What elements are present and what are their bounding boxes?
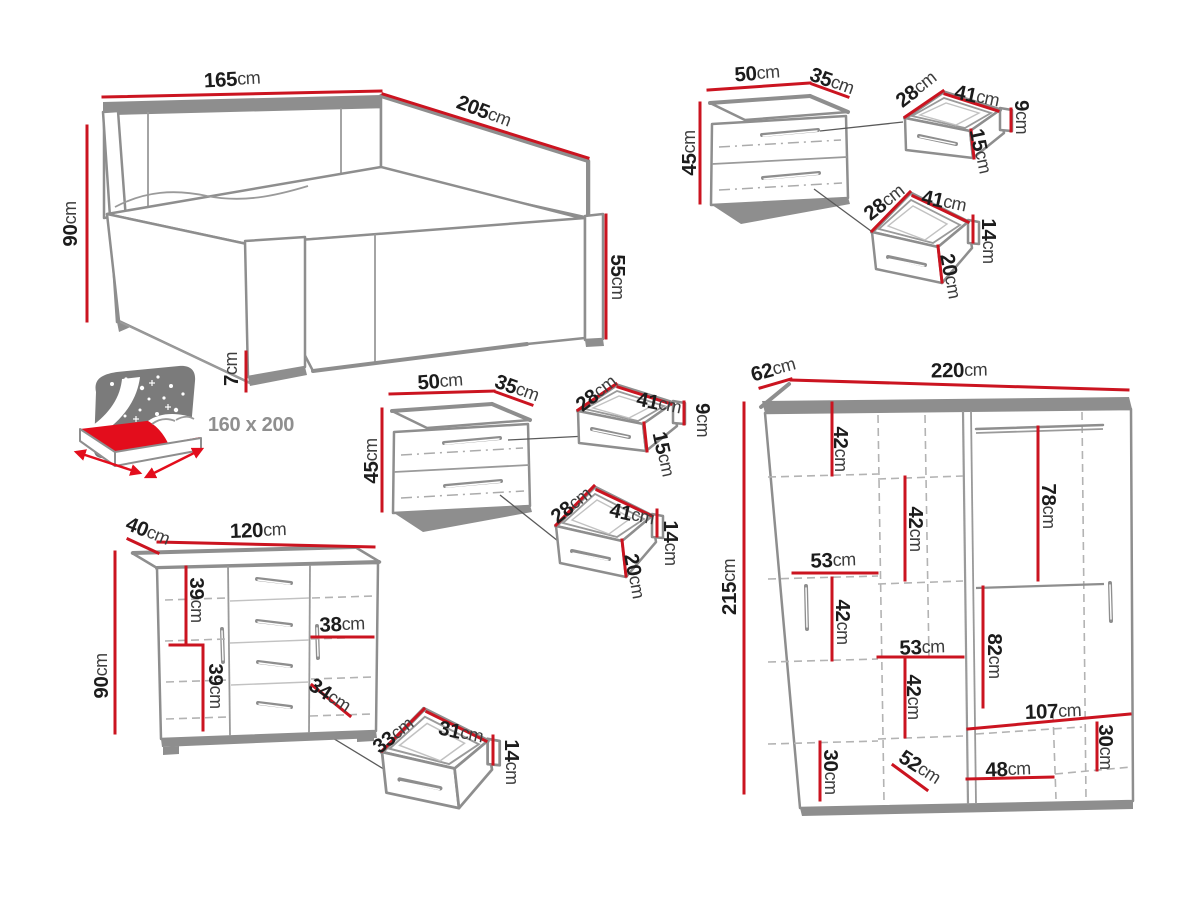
dim-label-wardrobe-inner-width-left: 53cm (810, 548, 856, 573)
dim-label-ns1-depth: 35cm (807, 62, 857, 99)
dim-label-wardrobe-shelf-c: 42cm (832, 599, 855, 644)
nightstand-middle-drawing (392, 404, 532, 532)
dim-label-d3-front-height: 15cm (648, 430, 680, 479)
dresser-drawing (132, 547, 380, 755)
bed-foot-post-right (585, 214, 603, 340)
dim-label-ns1-width: 50cm (734, 60, 781, 86)
dim-label-bed-width: 165cm (203, 66, 260, 92)
dim-label-ns2-height: 45cm (360, 438, 383, 483)
dim-label-d5-front-height: 14cm (501, 739, 524, 784)
dim-label-ns2-width: 50cm (417, 368, 464, 394)
dim-label-ns1-height: 45cm (678, 130, 701, 175)
dim-label-dresser-width: 120cm (229, 518, 286, 543)
dim-label-wardrobe-bottom-width: 48cm (985, 757, 1031, 782)
dim-label-dresser-height: 90cm (90, 653, 113, 698)
dim-label-wardrobe-bottom-right: 30cm (1095, 724, 1118, 769)
dim-label-bed-leg-height: 7cm (220, 352, 243, 386)
dim-label-wardrobe-hanging-lower: 82cm (984, 633, 1007, 678)
wardrobe-drawing (761, 384, 1133, 816)
dim-label-d4-front-height: 20cm (620, 552, 651, 601)
dim-label-d4-inner-height: 14cm (660, 520, 683, 565)
dim-label-d1-inner-height: 9cm (1011, 100, 1034, 134)
dim-label-wardrobe-inner-width-mid: 53cm (899, 635, 945, 660)
dim-label-bed-mattress-size: 160 x 200 (208, 414, 294, 436)
dim-label-bed-footend-height: 55cm (607, 254, 630, 299)
dim-label-wardrobe-width: 220cm (931, 358, 988, 382)
dim-label-wardrobe-shelf-d: 42cm (903, 674, 926, 719)
mattress-size-icon (76, 366, 202, 477)
dim-label-dresser-depth: 40cm (123, 512, 174, 550)
dim-label-wardrobe-inner-width-right: 107cm (1024, 699, 1081, 724)
nightstand-top-drawing (710, 96, 850, 224)
dim-label-dresser-section-height-a: 39cm (186, 577, 209, 622)
dim-label-wardrobe-shelf-a: 42cm (830, 426, 853, 471)
dim-label-dresser-section-height-b: 39cm (205, 663, 228, 708)
dim-label-d2-inner-height: 14cm (978, 218, 1001, 263)
dim-label-wardrobe-height: 215cm (718, 559, 741, 615)
furniture-dimensions-diagram: 165cm205cm90cm55cm7cm160 x 20050cm35cm45… (0, 0, 1200, 899)
dim-label-d3-inner-height: 9cm (692, 403, 715, 437)
bed-foot-post-left (245, 237, 305, 377)
dim-label-wardrobe-bottom-left: 30cm (820, 749, 843, 794)
dim-label-dresser-inner-width: 38cm (319, 612, 365, 637)
dim-label-bed-headboard-height: 90cm (59, 201, 82, 246)
dim-label-wardrobe-shelf-b: 42cm (905, 506, 928, 551)
dim-label-wardrobe-hanging-right: 78cm (1038, 483, 1061, 528)
